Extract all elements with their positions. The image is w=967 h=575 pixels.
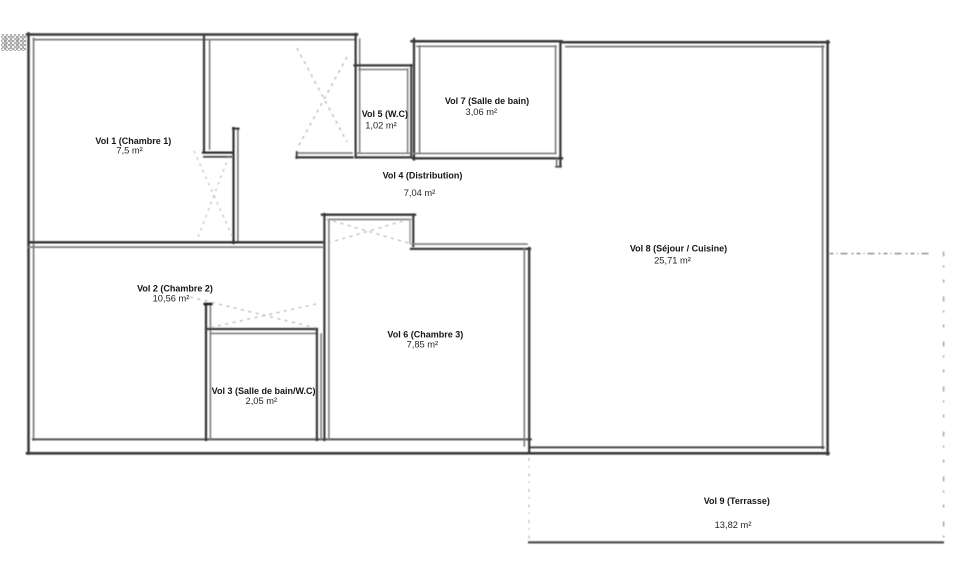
svg-text:Vol 7 (Salle de bain): Vol 7 (Salle de bain) bbox=[445, 96, 529, 106]
svg-text:10,56 m²: 10,56 m² bbox=[153, 294, 190, 304]
svg-text:Vol 3 (Salle de bain/W.C): Vol 3 (Salle de bain/W.C) bbox=[212, 386, 316, 396]
svg-text:Vol 5 (W.C): Vol 5 (W.C) bbox=[362, 109, 408, 119]
svg-text:Vol 6 (Chambre 3): Vol 6 (Chambre 3) bbox=[387, 330, 463, 340]
svg-text:13,82 m²: 13,82 m² bbox=[715, 520, 752, 530]
svg-text:Vol 8 (Séjour / Cuisine): Vol 8 (Séjour / Cuisine) bbox=[630, 244, 727, 254]
svg-text:Vol 9 (Terrasse): Vol 9 (Terrasse) bbox=[704, 496, 770, 506]
svg-text:Vol 2 (Chambre 2): Vol 2 (Chambre 2) bbox=[137, 284, 213, 294]
svg-text:Vol 1 (Chambre 1): Vol 1 (Chambre 1) bbox=[95, 136, 171, 146]
svg-text:3,06 m²: 3,06 m² bbox=[466, 107, 498, 117]
svg-text:25,71 m²: 25,71 m² bbox=[654, 256, 691, 266]
svg-text:2,05 m²: 2,05 m² bbox=[246, 396, 278, 406]
svg-text:7,85 m²: 7,85 m² bbox=[407, 339, 439, 349]
svg-text:7,5 m²: 7,5 m² bbox=[116, 146, 142, 156]
svg-text:7,04 m²: 7,04 m² bbox=[404, 188, 436, 198]
svg-text:Vol 4 (Distribution): Vol 4 (Distribution) bbox=[383, 171, 463, 181]
svg-text:1,02 m²: 1,02 m² bbox=[365, 120, 397, 130]
